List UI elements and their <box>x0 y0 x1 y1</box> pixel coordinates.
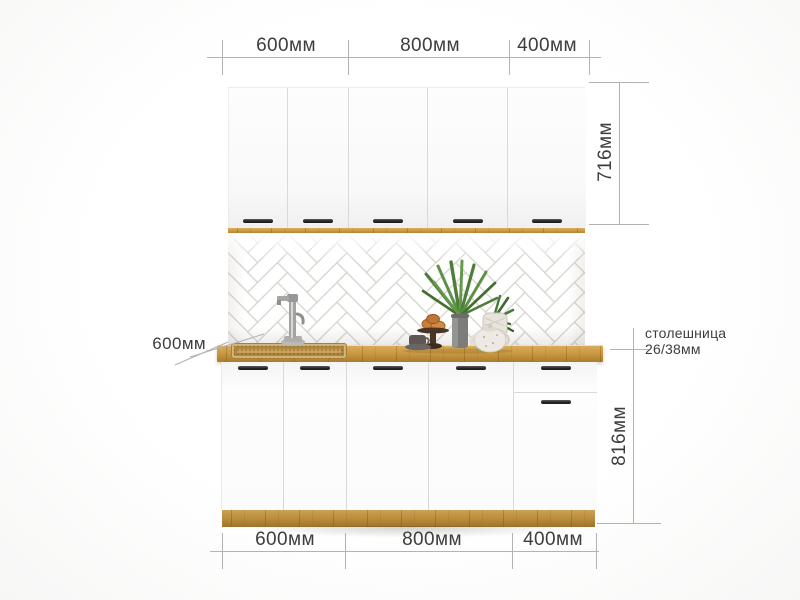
door-handle <box>541 400 571 404</box>
drawer-unit <box>514 362 597 510</box>
upper-door <box>428 88 508 228</box>
top-width-600: 600мм <box>256 35 316 57</box>
upper-cabinets <box>228 87 585 228</box>
plant <box>423 261 497 316</box>
top-width-400: 400мм <box>517 35 577 57</box>
base-door <box>284 362 347 510</box>
countertop-label-line1: столешница <box>645 325 726 341</box>
upper-cabinet-height-label: 716мм <box>595 122 617 182</box>
bottom-width-600: 600мм <box>255 529 315 551</box>
base-cabinets <box>221 362 596 510</box>
bottom-width-400: 400мм <box>523 529 583 551</box>
door-handle <box>238 366 268 370</box>
door-handle <box>373 366 403 370</box>
base-cabinet-height-label: 816мм <box>609 406 631 466</box>
door-handle <box>453 219 483 223</box>
door-handle <box>373 219 403 223</box>
upper-door <box>349 88 428 228</box>
drawer-handle <box>541 366 571 370</box>
base-door <box>222 362 284 510</box>
faucet <box>276 292 310 348</box>
door-handle <box>243 219 273 223</box>
door-handle <box>303 219 333 223</box>
door-handle <box>300 366 330 370</box>
cup <box>405 335 431 350</box>
top-width-800: 800мм <box>400 35 460 57</box>
door-handle <box>532 219 562 223</box>
upper-door <box>288 88 349 228</box>
vase <box>451 314 469 348</box>
base-door <box>514 393 597 510</box>
upper-door <box>508 88 586 228</box>
bottom-width-800: 800мм <box>402 529 462 551</box>
door-handle <box>456 366 486 370</box>
plinth <box>222 510 595 527</box>
countertop-label-line2: 26/38мм <box>645 341 726 357</box>
upper-door <box>229 88 288 228</box>
kitchen-dimension-diagram: 600мм 800мм 400мм 600мм 800мм 400мм 716м… <box>0 0 800 600</box>
countertop-label: столешница 26/38мм <box>645 325 726 357</box>
drawer-front <box>514 362 597 393</box>
countertop-depth-label: 600мм <box>152 334 206 354</box>
base-door <box>347 362 429 510</box>
base-door <box>429 362 514 510</box>
decor-items <box>396 258 516 354</box>
